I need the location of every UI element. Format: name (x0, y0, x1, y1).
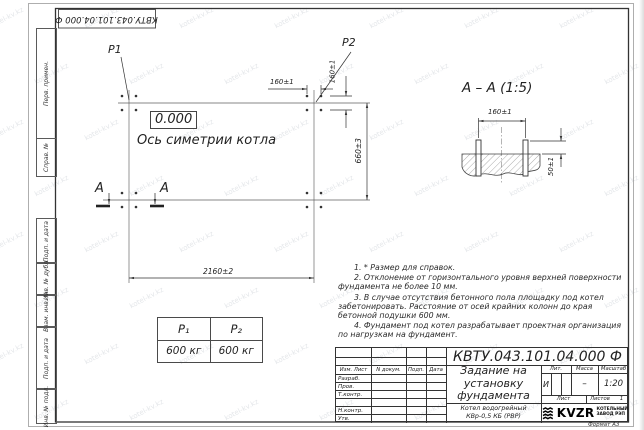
note-line: 4. Фундамент под котел разрабатывает про… (338, 321, 630, 339)
section-letter-right: А (160, 182, 169, 195)
dim-foundation-width: 2160±2 (203, 268, 233, 276)
dim-section-bolt-spacing: 160±1 (488, 109, 512, 116)
format-note: Формат А3 (588, 423, 619, 429)
paper-sheet: kotel-kv.kzkotel-kv.kzkotel-kv.kzkotel-k… (0, 0, 644, 430)
dim-bolt-spacing-x: 160±1 (270, 79, 294, 86)
load-table-header-p1: P₁ (158, 318, 211, 340)
margin-label: Справ. № (43, 143, 50, 172)
tb-scale-label: Масштаб (598, 365, 629, 373)
tb-lit-label: Лит. (541, 365, 571, 373)
tb-sheets-value: 1 (614, 395, 629, 403)
load-table-header-p2: P₂ (211, 318, 263, 340)
tb-row-utv: Утв. (338, 416, 350, 422)
dim-foundation-height: 660±3 (352, 131, 366, 171)
drawing-sheet: { "doc": { "number": "КВТУ.043.101.04.00… (0, 0, 644, 430)
title-block: Изм. Лист N докум. Подп. Дата Разраб. Пр… (335, 347, 628, 422)
section-cut-marks (96, 193, 164, 206)
tb-doc-title: Задание на установку фундамента (446, 365, 541, 403)
tb-sheet-label: Лист (541, 395, 586, 403)
margin-box-vzam-inv: Взам. инв. № (36, 294, 57, 328)
note-line: 3. В случае отсутствия бетонного пола пл… (338, 293, 630, 321)
margin-label: Инв. № подл. (43, 385, 50, 426)
tb-mass-value: – (571, 373, 598, 395)
company-logo: KVZR КОТЕЛЬНЫЙ ЗАВОД РЭП (542, 404, 628, 422)
tb-col-ndocum: N докум. (371, 365, 406, 374)
elevation-mark: 0.000 (150, 111, 197, 129)
dim-section-protrusion: 50±1 (545, 152, 559, 180)
technical-notes: 1. * Размер для справок. 2. Отклонение о… (338, 263, 630, 341)
tb-row-prov: Пров. (338, 384, 354, 390)
load-table-header-row: P₁ P₂ (158, 318, 262, 341)
tb-sheets-label: Листов (586, 395, 614, 403)
load-point-p2-label: P2 (342, 37, 356, 48)
dim-bolt-spacing-y: 160±1 (326, 56, 340, 86)
tb-mass-label: Масса (571, 365, 598, 373)
margin-box-inv-podl: Инв. № подл. (36, 388, 57, 424)
load-table-value-row: 600 кг 600 кг (158, 341, 262, 363)
margin-box-podp-data-2: Подп. и дата (36, 326, 57, 390)
margin-label: Подп. и дата (43, 338, 50, 379)
margin-box-perv-primen: Перв. примен. (36, 28, 57, 139)
tb-col-izm-list: Изм. Лист (336, 365, 371, 374)
margin-label: Перв. примен. (43, 61, 50, 106)
load-table: P₁ P₂ 600 кг 600 кг (157, 317, 263, 363)
tb-col-data: Дата (426, 365, 446, 374)
rotated-doc-number-stamp: КВТУ.043.101.04.000 Ф (58, 9, 155, 28)
note-line: 1. * Размер для справок. (338, 263, 630, 272)
tb-row-nkontr: Н.контр. (338, 408, 363, 414)
margin-label: Подп. и дата (43, 221, 50, 262)
tb-row-razrab: Разраб. (338, 376, 360, 382)
note-line: 2. Отклонение от горизонтального уровня … (338, 273, 630, 291)
tb-col-podp: Подп. (406, 365, 426, 374)
section-letter-left: А (95, 182, 104, 195)
margin-box-podp-data-1: Подп. и дата (36, 218, 57, 264)
tb-row-tkontr: Т.контр. (338, 392, 362, 398)
tb-doc-number: КВТУ.043.101.04.000 Ф (446, 348, 629, 365)
tb-product-name: Котел водогрейный КВр-0,5 КБ (РВР) (446, 403, 541, 423)
tb-lit-value: И (541, 373, 551, 395)
margin-box-sprav-n: Справ. № (36, 138, 57, 177)
brand-tagline: КОТЕЛЬНЫЙ ЗАВОД РЭП (596, 408, 628, 418)
section-view-title: А – А (1:5) (462, 82, 532, 96)
load-table-value-p1: 600 кг (158, 341, 211, 363)
tb-scale-value: 1:20 (598, 373, 629, 395)
kvzr-coil-icon (542, 407, 555, 420)
load-table-value-p2: 600 кг (211, 341, 263, 363)
boiler-symmetry-axis-label: Ось симетрии котла (137, 134, 276, 147)
load-point-p1-label: P1 (108, 44, 122, 55)
brand-name: KVZR (557, 406, 595, 420)
plan-axis-lines (103, 90, 370, 283)
scan-edge-shadow (639, 0, 644, 430)
